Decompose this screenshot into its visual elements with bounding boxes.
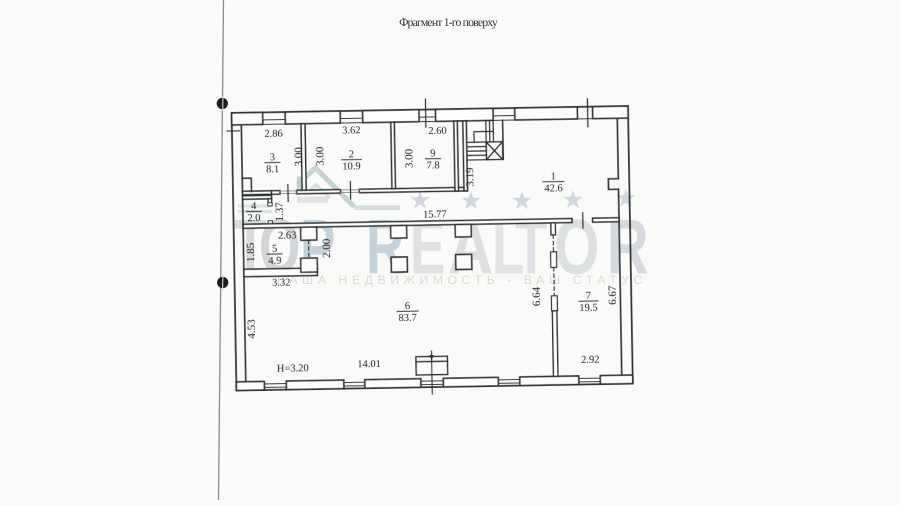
svg-text:4.9: 4.9 xyxy=(268,256,281,267)
svg-text:2.0: 2.0 xyxy=(247,213,260,224)
svg-text:2.60: 2.60 xyxy=(428,126,447,137)
svg-text:ВАША НЕДВИЖИМОСТЬ - ВАШ СТАТУС: ВАША НЕДВИЖИМОСТЬ - ВАШ СТАТУС xyxy=(277,273,647,287)
svg-text:3.62: 3.62 xyxy=(342,125,361,136)
svg-text:Н=3.20: Н=3.20 xyxy=(277,363,309,375)
svg-text:83.7: 83.7 xyxy=(398,313,417,324)
svg-text:15.77: 15.77 xyxy=(423,209,447,220)
svg-text:10.9: 10.9 xyxy=(342,161,361,172)
svg-text:3.00: 3.00 xyxy=(403,148,415,168)
svg-text:7: 7 xyxy=(586,291,591,302)
svg-text:2.63: 2.63 xyxy=(278,230,297,241)
svg-text:1.37: 1.37 xyxy=(273,202,285,222)
svg-text:Фрагмент 1-го поверху: Фрагмент 1-го поверху xyxy=(399,15,498,29)
svg-text:2.92: 2.92 xyxy=(581,355,600,366)
svg-text:9: 9 xyxy=(430,148,435,159)
svg-text:2.86: 2.86 xyxy=(264,129,283,140)
svg-text:7.8: 7.8 xyxy=(426,160,439,171)
svg-text:5: 5 xyxy=(272,244,277,255)
svg-text:4: 4 xyxy=(251,201,257,212)
svg-text:3: 3 xyxy=(270,152,275,163)
svg-text:6.64: 6.64 xyxy=(531,286,543,306)
svg-text:6: 6 xyxy=(405,301,410,312)
svg-text:3.32: 3.32 xyxy=(272,277,291,288)
svg-text:2.00: 2.00 xyxy=(321,238,333,258)
svg-text:19.5: 19.5 xyxy=(579,303,598,314)
svg-text:1.85: 1.85 xyxy=(245,242,257,262)
svg-text:14.01: 14.01 xyxy=(357,359,381,370)
svg-text:6.67: 6.67 xyxy=(607,285,619,305)
svg-text:42.6: 42.6 xyxy=(544,183,563,194)
svg-text:3.00: 3.00 xyxy=(293,147,305,167)
svg-text:3.19: 3.19 xyxy=(464,167,476,187)
svg-text:8.1: 8.1 xyxy=(266,164,279,175)
svg-text:1: 1 xyxy=(551,171,556,182)
svg-text:4.53: 4.53 xyxy=(246,319,258,339)
svg-text:3.00: 3.00 xyxy=(314,146,326,166)
svg-text:2: 2 xyxy=(349,149,354,160)
